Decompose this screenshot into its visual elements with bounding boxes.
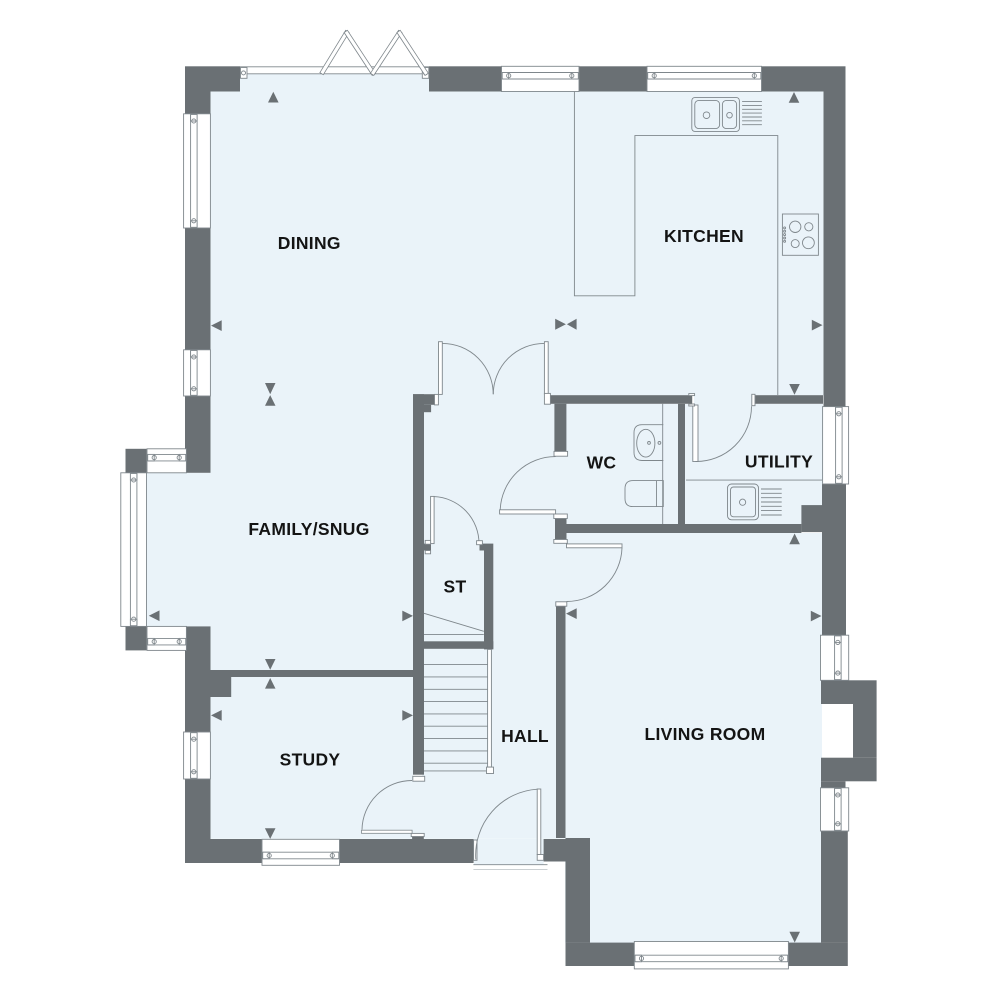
svg-text:WC: WC <box>587 453 617 473</box>
svg-text:KITCHEN: KITCHEN <box>664 226 744 246</box>
svg-text:FAMILY/SNUG: FAMILY/SNUG <box>248 519 369 539</box>
svg-text:LIVING ROOM: LIVING ROOM <box>645 724 766 744</box>
svg-text:HALL: HALL <box>501 726 549 746</box>
svg-text:UTILITY: UTILITY <box>745 452 813 472</box>
svg-text:STUDY: STUDY <box>280 750 341 770</box>
svg-text:ST: ST <box>444 577 467 597</box>
svg-text:DINING: DINING <box>278 233 341 253</box>
